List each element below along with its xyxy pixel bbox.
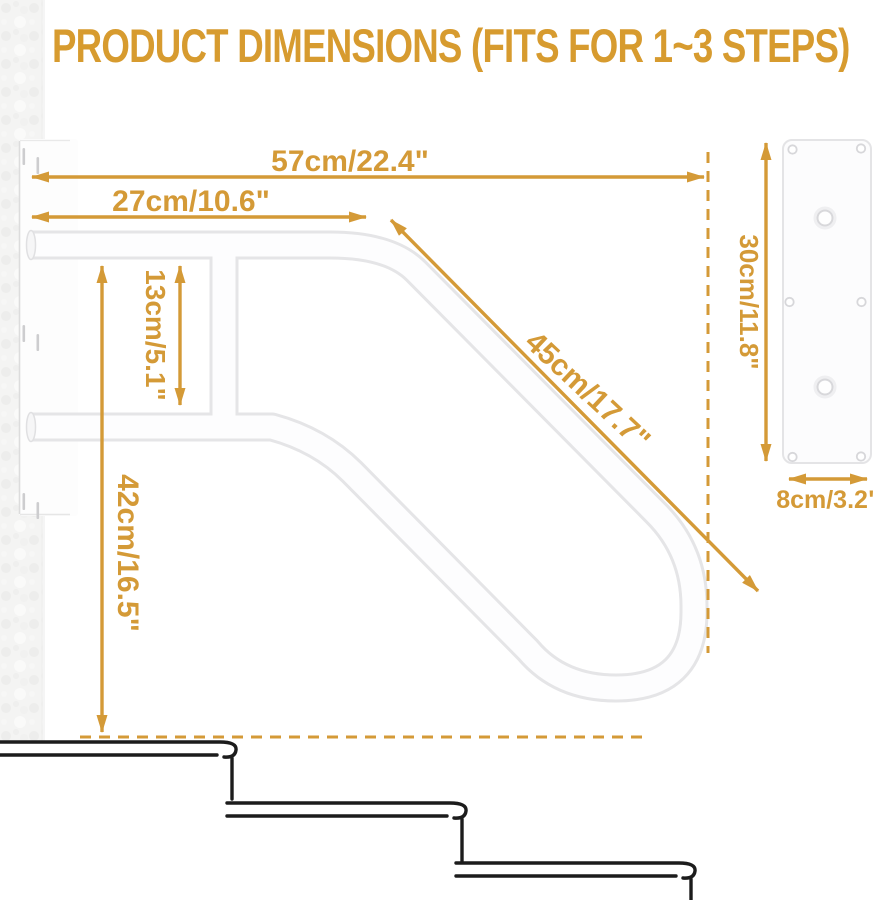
product-dimensions-figure: PRODUCT DIMENSIONS (FITS FOR 1~3 STEPS): [0, 0, 874, 900]
dim-label-42cm: 42cm/16.5": [111, 474, 144, 632]
mounting-plate: [783, 140, 871, 463]
wall-mount-plate: [19, 139, 78, 519]
dim-label-27cm: 27cm/10.6": [112, 185, 270, 218]
tube-end-cap-top: [27, 231, 36, 260]
dim-label-30cm: 30cm/11.8": [734, 234, 764, 369]
product-diagram: 57cm/22.4" 27cm/10.6" 13cm/5.1" 42cm/16.…: [0, 0, 874, 900]
tube-end-cap-bottom: [27, 413, 36, 442]
steps-outline: [0, 742, 695, 900]
dim-label-57cm: 57cm/22.4": [271, 145, 429, 178]
dim-arrow-45cm: [391, 220, 758, 591]
dim-label-13cm: 13cm/5.1": [140, 269, 171, 401]
dim-label-8cm: 8cm/3.2": [776, 486, 874, 514]
